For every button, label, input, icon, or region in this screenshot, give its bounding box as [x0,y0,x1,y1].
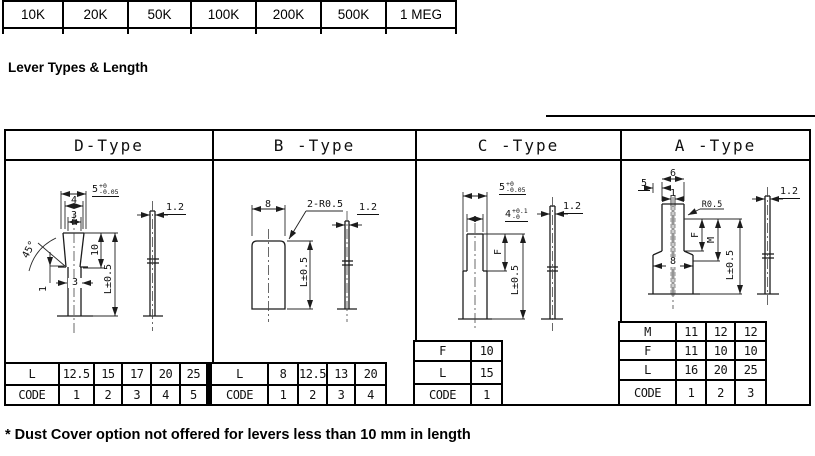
dim-label: R0.5 [698,200,726,210]
value-cell: 1 [472,385,501,404]
resistance-value: 1 MEG [400,7,442,22]
table-row: F 10 [415,342,501,362]
value-cell: 17 [123,364,152,384]
b-type-spec-table: L 8 12.5 13 20 CODE 1 2 3 4 [210,362,387,406]
table-row: L 8 12.5 13 20 [212,364,385,386]
panel-title-d: D-Type [74,136,144,155]
row-label-cell: CODE [620,381,677,404]
value-cell: 20 [152,364,180,384]
value-cell: 4 [356,386,385,404]
dim-label: L±0.5 [726,247,736,283]
value-cell: 25 [181,364,208,384]
table-row: CODE 1 2 3 4 [212,386,385,404]
value-cell: 12.5 [299,364,328,384]
panel-header-c: C -Type [417,131,620,161]
row-label-cell: L [620,361,677,379]
row-label-cell: M [620,323,677,340]
value-cell: 15 [95,364,123,384]
resistance-cell: 20K [64,2,129,27]
dim-label: 5 [638,179,650,191]
row-label-cell: L [212,364,269,384]
dim-label: 3 [67,211,81,221]
value-cell: 5 [181,386,208,404]
datasheet-page: 10K 20K 50K 100K 200K 500K 1 MEG Lever T… [0,0,815,456]
dim-label: 6 [666,169,680,179]
value-cell: 12 [707,323,736,340]
value-cell: 20 [356,364,385,384]
table-row: CODE 1 2 3 4 5 [6,386,208,404]
value-cell: 10 [736,342,765,359]
row-label-cell: CODE [6,386,60,404]
dim-label: 5+0-0.05 [499,181,526,195]
dim-label: 8 [666,257,680,267]
table-row: F 11 10 10 [620,342,765,361]
value-cell: 11 [677,342,707,359]
c-type-drawing: 5+0-0.05 4+0.1-0 F L±0.5 1.2 [413,159,618,339]
value-cell: 12 [736,323,765,340]
b-type-drawing: 8 2-R0.5 L±0.5 1.2 [210,159,413,361]
resistance-value: 100K [208,7,240,22]
row-label-cell: CODE [415,385,472,404]
panel-header-a: A -Type [622,131,809,161]
dim-label: F [691,227,701,243]
a-type-spec-table: M 11 12 12 F 11 10 10 L 16 20 25 CODE 1 … [618,321,767,406]
resistance-value: 200K [273,7,305,22]
page-edge-line [546,115,815,117]
dim-label: 4+0.1-0 [505,208,528,222]
dust-cover-footnote: * Dust Cover option not offered for leve… [5,427,471,443]
table-row: L 15 [415,362,501,385]
value-cell: 16 [677,361,707,379]
table-row: CODE 1 2 3 [620,381,765,404]
resistance-value: 20K [83,7,107,22]
value-cell: 2 [95,386,123,404]
dim-label: 3 [68,278,82,288]
dim-label: F [494,244,504,260]
dim-label: 1.2 [561,202,583,214]
value-cell: 10 [707,342,736,359]
dim-label: 10 [91,240,101,260]
resistance-cell: 10K [4,2,64,27]
table-row: L 12.5 15 17 20 25 [6,364,208,386]
resistance-cell: 500K [322,2,387,27]
value-cell: 25 [736,361,765,379]
d-type-drawing: 5+0-0.05 4 3 10 L±0.5 45° 1 3 1.2 [4,159,210,361]
table-row: M 11 12 12 [620,323,765,342]
table-row: CODE 1 [415,385,501,404]
row-label-cell: F [415,342,472,360]
value-cell: 4 [152,386,180,404]
value-cell: 13 [328,364,356,384]
resistance-value: 50K [147,7,171,22]
resistance-table-stubs [2,29,457,34]
panel-header-b: B -Type [214,131,415,161]
row-label-cell: CODE [212,386,269,404]
dim-label: L±0.5 [104,261,114,297]
value-cell: 12.5 [60,364,95,384]
a-type-drawing: 6 5 1 R0.5 F M L±0.5 8 1.2 [618,159,811,320]
d-type-spec-table: L 12.5 15 17 20 25 CODE 1 2 3 4 5 [4,362,210,406]
section-heading: Lever Types & Length [8,60,148,75]
panel-title-b: B -Type [274,136,355,155]
panel-title-c: C -Type [478,136,559,155]
value-cell: 3 [123,386,152,404]
dim-label: 1 [667,189,679,199]
dim-label: 1.2 [778,187,800,199]
value-cell: 11 [677,323,707,340]
row-label-cell: F [620,342,677,359]
panel-header-d: D-Type [6,131,212,161]
resistance-table: 10K 20K 50K 100K 200K 500K 1 MEG [2,0,457,29]
dim-label: 4 [67,196,81,206]
dim-label: 1 [39,283,49,295]
resistance-value: 10K [21,7,45,22]
resistance-cell: 50K [129,2,192,27]
dim-label: 1.2 [357,203,379,215]
value-cell: 1 [269,386,299,404]
table-row: L 16 20 25 [620,361,765,381]
resistance-cell: 200K [257,2,322,27]
value-cell: 3 [736,381,765,404]
c-type-spec-table: F 10 L 15 CODE 1 [413,340,503,406]
value-cell: 2 [707,381,736,404]
b-type-cad-lines [210,159,413,361]
resistance-cell: 1 MEG [387,2,455,27]
value-cell: 8 [269,364,299,384]
dim-label: 5+0-0.05 [92,183,119,197]
row-label-cell: L [6,364,60,384]
value-cell: 2 [299,386,328,404]
panel-title-a: A -Type [675,136,756,155]
row-label-cell: L [415,362,472,383]
value-cell: 20 [707,361,736,379]
value-cell: 1 [60,386,95,404]
dim-label: 1.2 [164,203,186,215]
dim-label: L±0.5 [511,262,521,298]
value-cell: 1 [677,381,707,404]
value-cell: 10 [472,342,501,360]
resistance-value: 500K [338,7,370,22]
dim-label: 8 [261,200,275,210]
resistance-cell: 100K [192,2,257,27]
dim-label: 2-R0.5 [304,200,346,210]
dim-label: M [707,232,717,248]
dim-label: L±0.5 [300,254,310,290]
value-cell: 15 [472,362,501,383]
value-cell: 3 [328,386,356,404]
